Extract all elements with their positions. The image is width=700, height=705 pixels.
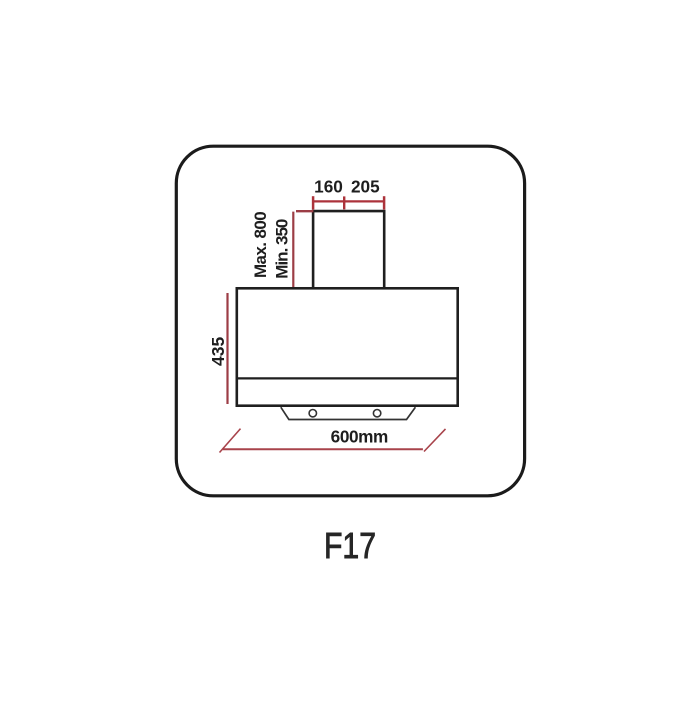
svg-text:205: 205 (351, 177, 380, 197)
svg-text:435: 435 (208, 337, 228, 366)
svg-text:160: 160 (314, 177, 343, 197)
svg-text:Max. 800: Max. 800 (251, 212, 270, 278)
svg-text:F17: F17 (324, 525, 376, 566)
svg-text:600mm: 600mm (331, 427, 388, 447)
svg-text:Min. 350: Min. 350 (273, 219, 292, 279)
